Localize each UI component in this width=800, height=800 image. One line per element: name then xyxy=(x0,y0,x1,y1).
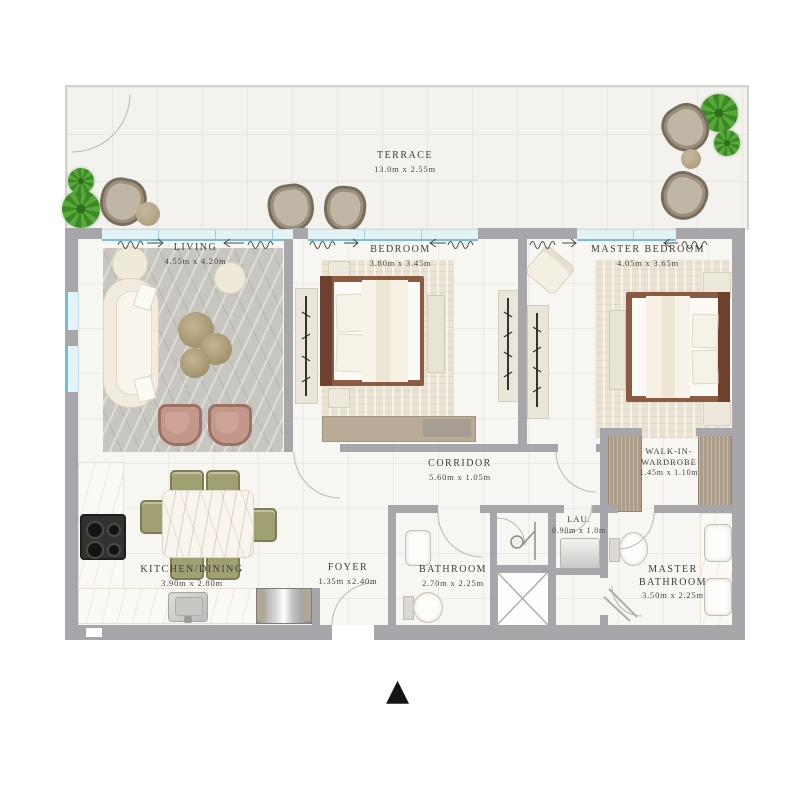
hall-closet xyxy=(498,290,520,402)
wall-niche xyxy=(86,628,102,637)
window xyxy=(66,292,79,330)
room-name: TERRACE xyxy=(320,150,490,163)
armchair xyxy=(208,404,252,446)
room-label-master-bathroom: MASTER BATHROOM 3.50m x 2.25m xyxy=(632,564,714,601)
room-label-walk-in-wardrobe: WALK-IN-WARDROBE 1.45m x 1.10m xyxy=(637,446,701,478)
sofa xyxy=(103,278,159,408)
walkin-wardrobe-unit xyxy=(698,435,732,512)
terrace-table xyxy=(136,202,160,226)
bed xyxy=(320,276,424,386)
wall xyxy=(293,228,308,239)
toilet-icon xyxy=(403,592,443,622)
master-bed xyxy=(626,292,730,402)
bedroom-wardrobe xyxy=(295,288,318,404)
room-dims: 2.70m x 2.25m xyxy=(408,578,498,589)
faucet xyxy=(184,616,192,623)
armchair xyxy=(158,404,202,446)
armchair-seat xyxy=(165,412,189,434)
room-dims: 4.55m x 4.20m xyxy=(128,256,263,267)
elevator-icon xyxy=(497,572,550,627)
stove-icon xyxy=(80,514,126,560)
burner xyxy=(107,543,121,557)
window xyxy=(102,229,293,241)
room-name: WALK-IN-WARDROBE xyxy=(637,446,701,467)
toilet-icon xyxy=(609,530,647,566)
master-sink-icon xyxy=(704,524,732,562)
wall xyxy=(284,239,293,452)
bed-bench xyxy=(609,310,626,390)
room-label-living: LIVING 4.55m x 4.20m xyxy=(128,242,263,266)
room-name: FOYER xyxy=(306,562,390,575)
room-dims: 1.35m x2.40m xyxy=(306,576,390,587)
plant-icon xyxy=(62,190,100,228)
hall-closet xyxy=(527,305,549,419)
wall xyxy=(497,565,548,572)
toilet-bowl xyxy=(619,532,648,566)
room-label-foyer: FOYER 1.35m x2.40m xyxy=(306,562,390,586)
pillow xyxy=(691,350,718,385)
armchair-seat xyxy=(215,412,239,434)
kitchen-appliance xyxy=(256,588,312,624)
room-label-master-bedroom: MASTER BEDROOM 4.05m x 3.65m xyxy=(558,244,738,268)
window xyxy=(577,229,676,241)
burner xyxy=(86,521,104,539)
washing-machine-icon xyxy=(560,538,600,569)
pouf xyxy=(214,262,246,294)
burner xyxy=(86,541,104,559)
appliance-panel xyxy=(303,589,311,621)
wall xyxy=(654,505,732,513)
sofa-cushion xyxy=(133,283,158,311)
room-dims: 0.90m x 1.0m xyxy=(551,526,607,536)
room-name: BATHROOM xyxy=(408,564,498,577)
wall xyxy=(65,625,745,640)
wall xyxy=(340,444,518,452)
room-dims: 3.80m x 3.45m xyxy=(328,258,473,269)
nightstand xyxy=(703,400,731,426)
north-arrow-icon: ▲ xyxy=(386,676,409,706)
wall xyxy=(696,428,732,436)
entrance-opening xyxy=(332,625,374,640)
bathroom-sink-icon xyxy=(405,530,431,566)
room-label-corridor: CORRIDOR 5.60m x 1.05m xyxy=(390,458,530,482)
plant-icon xyxy=(68,168,94,194)
wall xyxy=(526,444,558,452)
room-dims: 3.50m x 2.25m xyxy=(632,590,714,601)
dining-table xyxy=(162,490,254,558)
wall xyxy=(312,588,320,625)
room-name: MASTER BATHROOM xyxy=(632,564,714,589)
kitchen-sink-icon xyxy=(168,592,208,622)
wall xyxy=(608,505,618,513)
nightstand xyxy=(328,388,350,408)
plant-icon xyxy=(714,130,740,156)
blanket xyxy=(362,280,408,382)
wall xyxy=(396,505,438,513)
pillow xyxy=(335,294,364,333)
room-label-kitchen-dining: KITCHEN/DINING 3.90m x 2.80m xyxy=(112,564,272,588)
window xyxy=(66,346,79,392)
room-name: CORRIDOR xyxy=(390,458,530,471)
room-name: LIVING xyxy=(128,242,263,255)
appliance-panel xyxy=(257,589,265,621)
bed-bench xyxy=(427,295,445,373)
room-label-bedroom: BEDROOM 3.80m x 3.45m xyxy=(328,244,473,268)
room-dims: 5.60m x 1.05m xyxy=(390,472,530,483)
sink-bowl xyxy=(175,597,203,616)
coffee-table xyxy=(180,348,210,378)
wall xyxy=(518,239,527,452)
room-dims: 4.05m x 3.65m xyxy=(558,258,738,269)
wall xyxy=(478,228,577,239)
wall xyxy=(592,505,600,513)
pillow xyxy=(335,334,364,373)
toilet-bowl xyxy=(413,592,443,623)
room-dims: 13.0m x 2.55m xyxy=(320,164,490,175)
window xyxy=(308,229,478,241)
sofa-cushion xyxy=(133,375,156,403)
room-label-terrace: TERRACE 13.0m x 2.55m xyxy=(320,150,490,174)
dresser-section xyxy=(423,419,471,437)
floor-plan: TERRACE 13.0m x 2.55m LIVING 4.55m x 4.2… xyxy=(0,0,800,800)
room-name: MASTER BEDROOM xyxy=(558,244,738,257)
room-name: LAU. xyxy=(551,514,607,525)
room-dims: 3.90m x 2.80m xyxy=(112,578,272,589)
burner xyxy=(107,523,121,537)
wall xyxy=(608,428,642,436)
headboard xyxy=(320,276,332,386)
wall xyxy=(732,228,745,640)
blanket xyxy=(646,296,690,398)
terrace-table xyxy=(681,149,701,169)
wall xyxy=(600,615,608,628)
headboard xyxy=(718,292,730,402)
room-label-laundry: LAU. 0.90m x 1.0m xyxy=(551,514,607,536)
room-name: BEDROOM xyxy=(328,244,473,257)
wall xyxy=(65,228,78,640)
wall xyxy=(548,568,600,575)
room-name: KITCHEN/DINING xyxy=(112,564,272,577)
pillow xyxy=(691,314,718,349)
wall xyxy=(600,428,608,578)
room-dims: 1.45m x 1.10m xyxy=(637,468,701,478)
dresser xyxy=(322,416,476,442)
room-label-bathroom: BATHROOM 2.70m x 2.25m xyxy=(408,564,498,588)
